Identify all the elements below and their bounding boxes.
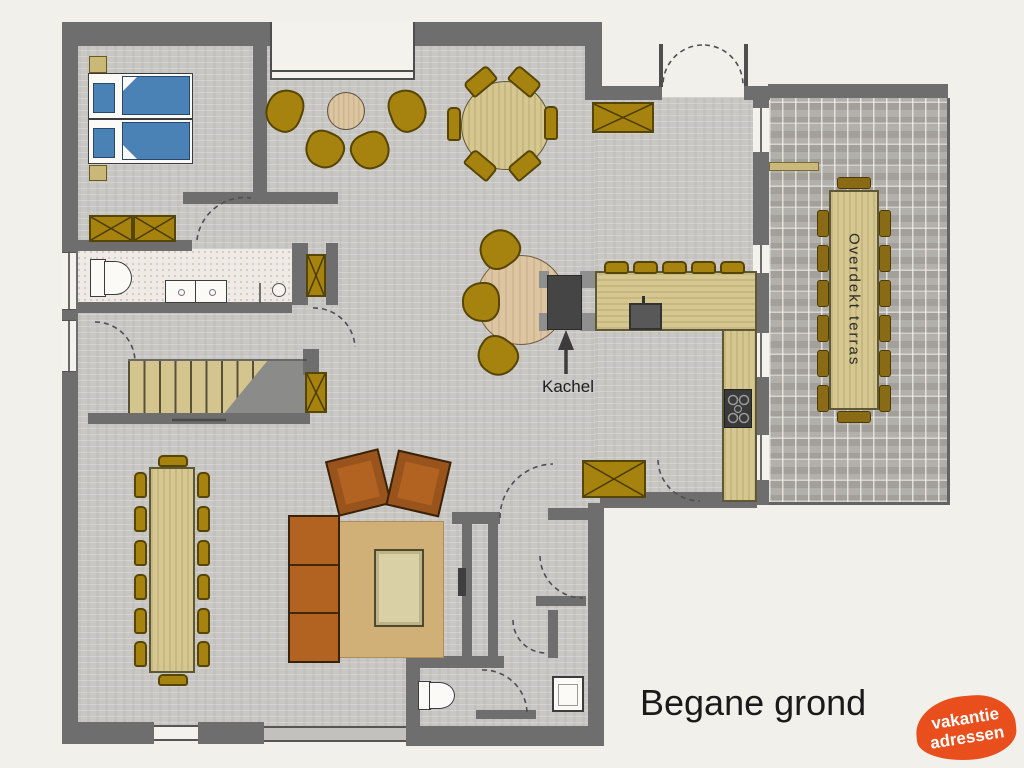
cabinet-x-icon bbox=[135, 217, 174, 240]
wall-under-stairs bbox=[88, 413, 310, 424]
kachel-chair-2 bbox=[462, 282, 500, 322]
staircase-landing bbox=[223, 361, 308, 415]
bed-1 bbox=[88, 73, 193, 119]
terrace-chair-l3 bbox=[817, 280, 829, 307]
corridor-door-mark bbox=[458, 568, 466, 596]
door-arc-double-right bbox=[705, 45, 743, 85]
window-left-b bbox=[62, 320, 76, 372]
bar-stool-2 bbox=[633, 261, 658, 274]
sink-right bbox=[195, 280, 227, 303]
wall-terrace-top bbox=[768, 84, 948, 98]
wall-corridor-right bbox=[488, 522, 498, 662]
window-right-a-line bbox=[760, 108, 762, 152]
wall-top-hall bbox=[415, 22, 587, 46]
terrace-chair-r6 bbox=[879, 385, 891, 412]
cabinet-x-icon bbox=[307, 374, 325, 411]
page-title: Begane grond bbox=[640, 682, 900, 724]
long-table-chair-l2 bbox=[134, 506, 147, 532]
kitchen-faucet-icon bbox=[642, 296, 645, 304]
window-left-a bbox=[62, 252, 76, 310]
terrace-chair-l5 bbox=[817, 350, 829, 377]
long-table-chair-r1 bbox=[197, 472, 210, 498]
bar-stool-3 bbox=[662, 261, 687, 274]
window-right-d-line bbox=[760, 435, 762, 480]
wall-left bbox=[62, 22, 78, 744]
toilet-bowl bbox=[429, 682, 455, 709]
terrace-chair-l6 bbox=[817, 385, 829, 412]
window-bottom-small bbox=[154, 725, 198, 741]
window-right-a bbox=[753, 108, 769, 152]
bed-1-pillow bbox=[93, 83, 115, 113]
nightstand-top bbox=[89, 56, 107, 73]
wall-living-entry-b bbox=[548, 508, 590, 520]
sink-drain-icon bbox=[178, 289, 185, 296]
bar-stool-5 bbox=[720, 261, 745, 274]
toilet-wc bbox=[418, 678, 458, 713]
sink-drain-icon bbox=[209, 289, 216, 296]
long-table-chair-r4 bbox=[197, 574, 210, 600]
washbasin-inner bbox=[558, 684, 578, 706]
terrace-endchair-top bbox=[837, 177, 871, 189]
door-post-right bbox=[744, 44, 748, 87]
window-bay-line bbox=[272, 70, 413, 72]
long-table-chair-r6 bbox=[197, 641, 210, 667]
wall-entry-right bbox=[588, 503, 604, 738]
sofa-cushion-line bbox=[290, 564, 338, 566]
long-table-chair-r5 bbox=[197, 608, 210, 634]
terrace-chair-l1 bbox=[817, 210, 829, 237]
wall-wc-inner-bottom bbox=[476, 710, 536, 719]
floor-plan: Kachel bbox=[0, 0, 1024, 768]
long-table-chair-l4 bbox=[134, 574, 147, 600]
round-table-chair-4 bbox=[544, 106, 558, 140]
wall-bathroom-bottom bbox=[62, 302, 292, 313]
washbasin-wc bbox=[552, 676, 584, 712]
cooktop-burners-icon bbox=[725, 390, 751, 427]
terrace-chair-r3 bbox=[879, 280, 891, 307]
sideboard-top bbox=[592, 102, 654, 133]
wall-entry-stub-h bbox=[536, 596, 586, 606]
bed-2-blanket bbox=[122, 122, 190, 160]
cabinet-x-icon bbox=[308, 256, 324, 295]
bed-1-blanket bbox=[122, 76, 190, 115]
kitchen-counter-top bbox=[595, 271, 757, 331]
long-table-endchair-top bbox=[158, 455, 188, 467]
double-sink bbox=[165, 280, 227, 303]
terrace-chair-r2 bbox=[879, 245, 891, 272]
window-right-b bbox=[753, 245, 769, 273]
kitchen-sink bbox=[629, 303, 662, 330]
terrace-table: Overdekt terras bbox=[829, 190, 879, 410]
cabinet-bathroom bbox=[306, 254, 326, 297]
bar-stool-4 bbox=[691, 261, 716, 274]
window-left-b-line bbox=[68, 321, 70, 371]
long-table-chair-l1 bbox=[134, 472, 147, 498]
long-table-chair-l5 bbox=[134, 608, 147, 634]
long-table bbox=[149, 467, 195, 673]
vakantieadressen-logo: vakantie adressen bbox=[913, 692, 1018, 764]
door-arc-double-left bbox=[663, 45, 702, 85]
long-table-chair-r2 bbox=[197, 506, 210, 532]
bed-2 bbox=[88, 119, 193, 164]
window-bay-top bbox=[270, 22, 415, 80]
dresser-cabinet-b bbox=[133, 215, 176, 242]
bed-2-pillow bbox=[93, 128, 115, 158]
wall-entry-stub-v bbox=[548, 610, 558, 658]
long-table-chair-l3 bbox=[134, 540, 147, 566]
sofa bbox=[288, 515, 340, 663]
terrace-chair-r5 bbox=[879, 350, 891, 377]
toilet-bowl bbox=[104, 261, 132, 295]
terrace-chair-l2 bbox=[817, 245, 829, 272]
terrace-endchair-bottom bbox=[837, 411, 871, 423]
terrace-doorsill bbox=[769, 162, 819, 171]
cabinet-stairs bbox=[305, 372, 327, 413]
wall-bottom-b bbox=[198, 722, 264, 744]
sink-left bbox=[165, 280, 196, 303]
cabinet-x-icon bbox=[584, 462, 644, 496]
long-table-endchair-bottom bbox=[158, 674, 188, 686]
toilet-bathroom bbox=[90, 256, 135, 300]
wall-bathroom-right-b bbox=[326, 243, 338, 305]
window-bottom-wide bbox=[264, 726, 406, 742]
wall-top-kitchen-left bbox=[598, 86, 662, 100]
terrace-label: Overdekt terras bbox=[846, 233, 863, 366]
cooktop bbox=[724, 389, 752, 428]
terrace-chair-r4 bbox=[879, 315, 891, 342]
window-left-a-line bbox=[68, 253, 70, 309]
bed-2-fold bbox=[123, 145, 137, 159]
window-right-c-line bbox=[760, 333, 762, 377]
lounge-table bbox=[327, 92, 365, 130]
bed-1-fold bbox=[123, 77, 137, 91]
cabinet-x-icon bbox=[91, 217, 131, 240]
wall-bedroom-bottom bbox=[183, 192, 338, 204]
long-table-chair-r3 bbox=[197, 540, 210, 566]
staircase bbox=[128, 361, 308, 415]
cabinet-x-icon bbox=[594, 104, 652, 131]
wall-bottom-a bbox=[62, 722, 154, 744]
window-right-b-line bbox=[760, 245, 762, 273]
long-table-chair-l6 bbox=[134, 641, 147, 667]
dresser-cabinet-a bbox=[89, 215, 133, 242]
kachel-label: Kachel bbox=[536, 377, 600, 397]
coffee-table bbox=[374, 549, 424, 627]
round-table-chair-3 bbox=[447, 107, 461, 141]
sideboard-kitchen bbox=[582, 460, 646, 498]
terrace-chair-l4 bbox=[817, 315, 829, 342]
door-post-left bbox=[659, 44, 663, 87]
terrace-chair-r1 bbox=[879, 210, 891, 237]
kachel-stove bbox=[547, 275, 582, 330]
bar-stool-1 bbox=[604, 261, 629, 274]
wall-top-bedroom bbox=[62, 22, 270, 46]
washbasin-round bbox=[272, 283, 286, 297]
sofa-cushion-line bbox=[290, 612, 338, 614]
wall-bottom-c bbox=[406, 726, 604, 746]
nightstand-bottom bbox=[89, 165, 107, 181]
